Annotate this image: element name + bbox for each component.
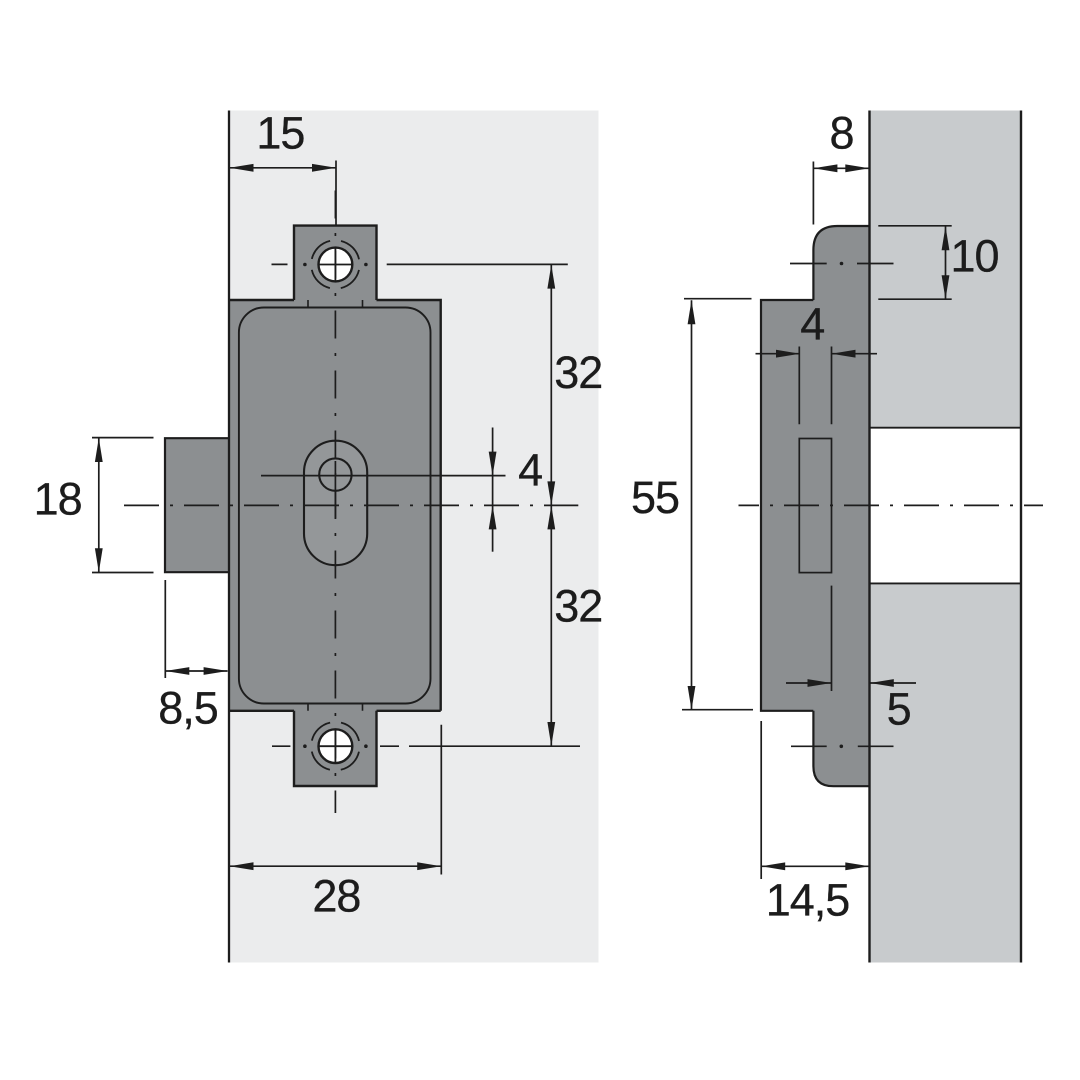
svg-text:15: 15 [256,108,304,159]
svg-text:32: 32 [554,347,602,398]
svg-text:10: 10 [950,230,998,281]
svg-text:4: 4 [800,299,824,350]
svg-text:14,5: 14,5 [766,875,850,926]
svg-text:4: 4 [518,445,542,496]
svg-text:18: 18 [34,474,82,525]
svg-text:8: 8 [829,108,853,159]
svg-text:28: 28 [312,871,360,922]
svg-text:5: 5 [887,684,911,735]
svg-text:32: 32 [554,581,602,632]
svg-text:55: 55 [631,472,679,523]
svg-text:8,5: 8,5 [158,683,218,734]
